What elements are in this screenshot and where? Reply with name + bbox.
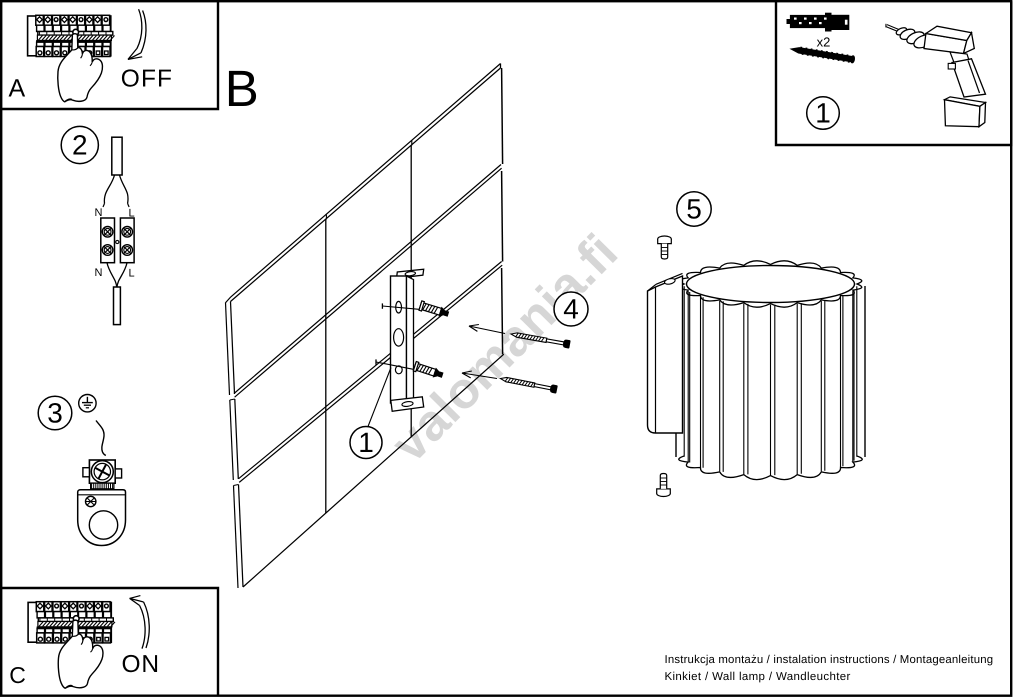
svg-text:OFF: OFF xyxy=(121,66,173,93)
svg-text:L: L xyxy=(128,268,134,280)
svg-text:1: 1 xyxy=(815,98,831,129)
svg-text:ON: ON xyxy=(122,651,160,678)
svg-text:4: 4 xyxy=(563,294,579,325)
svg-text:Instrukcja montażu / instalati: Instrukcja montażu / instalation instruc… xyxy=(665,654,994,666)
svg-text:N: N xyxy=(95,207,103,219)
svg-text:A: A xyxy=(9,75,26,103)
svg-text:1: 1 xyxy=(358,427,374,458)
svg-text:x2: x2 xyxy=(817,34,831,49)
svg-text:3: 3 xyxy=(47,398,63,429)
svg-text:2: 2 xyxy=(72,130,88,161)
svg-text:5: 5 xyxy=(686,194,702,225)
svg-text:Kinkiet / Wall lamp / Wandleuc: Kinkiet / Wall lamp / Wandleuchter xyxy=(665,671,851,683)
svg-text:B: B xyxy=(225,60,259,117)
svg-text:N: N xyxy=(95,267,103,279)
svg-text:C: C xyxy=(9,662,26,688)
